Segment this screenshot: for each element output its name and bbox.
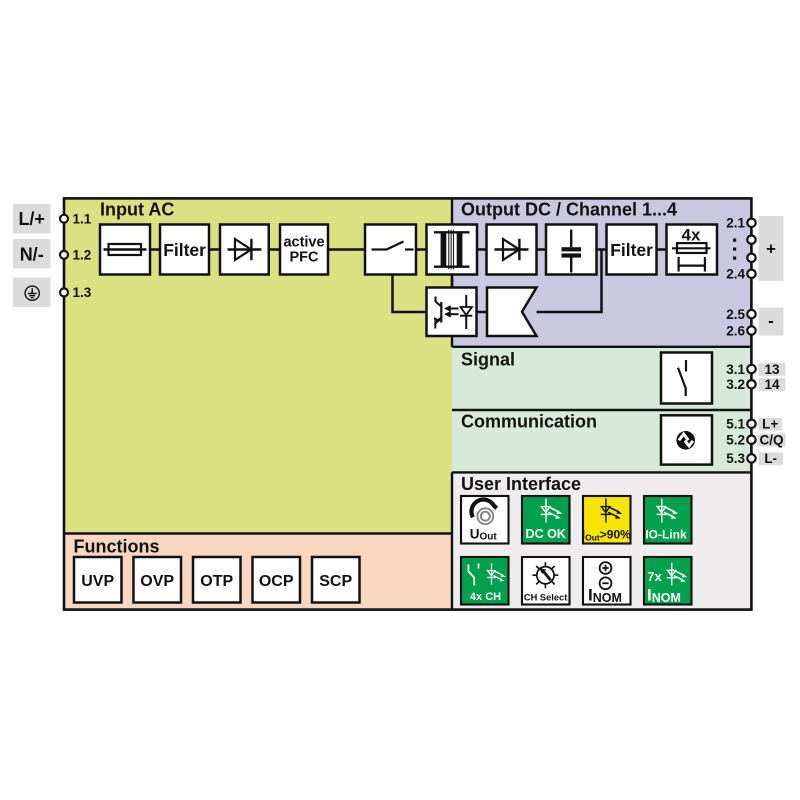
svg-text:1.2: 1.2 (73, 248, 92, 263)
svg-text:OTP: OTP (200, 573, 233, 590)
svg-text:1.1: 1.1 (73, 212, 92, 227)
svg-text:OVP: OVP (140, 573, 174, 590)
svg-text:IO-Link: IO-Link (645, 527, 687, 541)
svg-text:Filter: Filter (163, 240, 206, 260)
svg-text:OCP: OCP (259, 573, 294, 590)
svg-text:Input AC: Input AC (100, 199, 174, 219)
svg-text:L-: L- (764, 451, 777, 466)
svg-text:PFC: PFC (290, 249, 320, 265)
svg-text:+: + (766, 240, 776, 259)
svg-text:Communication: Communication (461, 411, 597, 431)
svg-text:14: 14 (764, 377, 780, 392)
svg-text:2.1: 2.1 (726, 216, 745, 231)
svg-text:SCP: SCP (319, 573, 352, 590)
svg-text:5.2: 5.2 (726, 433, 745, 448)
svg-text:L+: L+ (762, 417, 778, 432)
svg-text:3.1: 3.1 (726, 362, 745, 377)
svg-text:4x: 4x (682, 225, 701, 244)
svg-text:4x CH: 4x CH (470, 591, 501, 603)
svg-text:C/Q: C/Q (759, 433, 783, 448)
svg-text:2.6: 2.6 (726, 323, 745, 338)
svg-text:3.2: 3.2 (726, 377, 745, 392)
svg-text:Output DC / Channel 1...4: Output DC / Channel 1...4 (461, 199, 677, 219)
svg-text:DC OK: DC OK (526, 527, 566, 541)
svg-text:5.3: 5.3 (726, 451, 745, 466)
svg-text:1.3: 1.3 (73, 285, 92, 300)
svg-text:2.4: 2.4 (726, 267, 745, 282)
svg-text:UVP: UVP (81, 573, 114, 590)
svg-text:2.5: 2.5 (726, 307, 745, 322)
svg-text:-: - (768, 312, 774, 331)
svg-text:Filter: Filter (610, 240, 653, 260)
svg-text:Signal: Signal (461, 350, 515, 370)
svg-text:CH Select: CH Select (524, 592, 567, 602)
svg-text:active: active (283, 234, 324, 250)
svg-text:Functions: Functions (74, 536, 160, 556)
svg-text:5.1: 5.1 (726, 417, 745, 432)
svg-text:13: 13 (764, 362, 780, 377)
svg-text:L/+: L/+ (18, 209, 45, 229)
svg-text:N/-: N/- (20, 245, 44, 265)
svg-text:User Interface: User Interface (461, 474, 581, 494)
svg-text:7x: 7x (647, 569, 662, 584)
